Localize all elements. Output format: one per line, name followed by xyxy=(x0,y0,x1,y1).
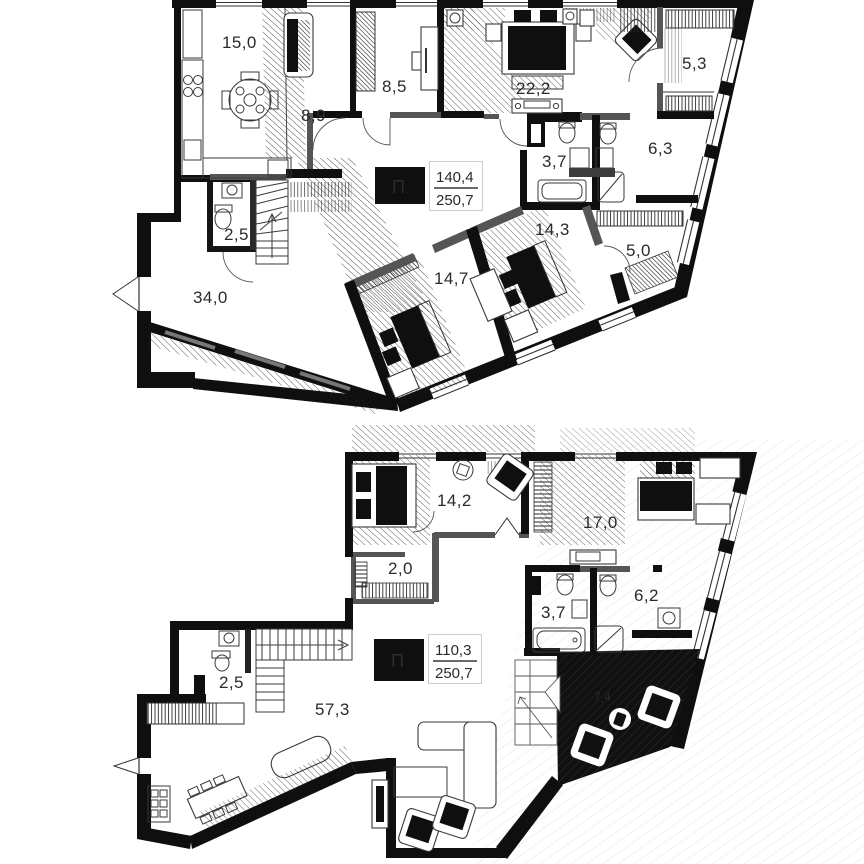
svg-text:140,4: 140,4 xyxy=(436,169,474,186)
svg-text:3,7: 3,7 xyxy=(541,603,566,622)
svg-text:2,5: 2,5 xyxy=(224,225,249,244)
svg-text:14,3: 14,3 xyxy=(535,220,570,239)
svg-text:14,2: 14,2 xyxy=(437,491,472,510)
svg-text:17,0: 17,0 xyxy=(583,513,618,532)
svg-text:22,2: 22,2 xyxy=(516,79,551,98)
svg-text:34,0: 34,0 xyxy=(193,288,228,307)
svg-text:15,0: 15,0 xyxy=(222,33,257,52)
svg-text:8,9: 8,9 xyxy=(301,106,326,125)
svg-text:5,0: 5,0 xyxy=(626,241,651,260)
svg-text:2,0: 2,0 xyxy=(388,559,413,578)
svg-text:250,7: 250,7 xyxy=(436,192,474,209)
svg-text:2,5: 2,5 xyxy=(219,673,244,692)
svg-text:6,3: 6,3 xyxy=(648,139,673,158)
svg-text:5,3: 5,3 xyxy=(682,54,707,73)
svg-text:110,3: 110,3 xyxy=(435,642,471,659)
svg-text:П: П xyxy=(392,177,405,197)
svg-text:7,4: 7,4 xyxy=(594,690,611,704)
svg-text:6,2: 6,2 xyxy=(634,586,659,605)
svg-text:250,7: 250,7 xyxy=(435,665,473,682)
svg-text:8,5: 8,5 xyxy=(382,77,407,96)
svg-text:14,7: 14,7 xyxy=(434,269,469,288)
svg-text:57,3: 57,3 xyxy=(315,700,350,719)
svg-text:П: П xyxy=(391,651,404,671)
svg-text:3,7: 3,7 xyxy=(542,152,567,171)
